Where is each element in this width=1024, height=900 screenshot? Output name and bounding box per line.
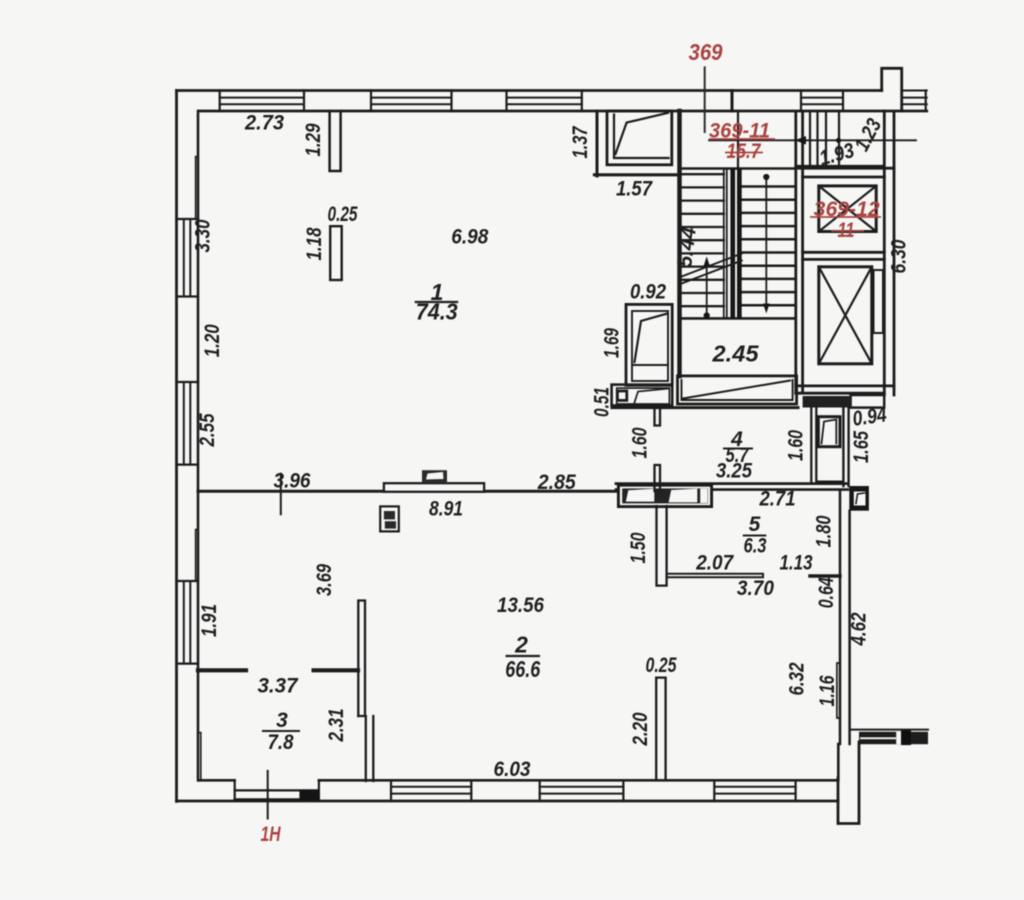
svg-text:1.20: 1.20 — [201, 324, 224, 357]
svg-text:2: 2 — [514, 632, 528, 658]
svg-text:6.03: 6.03 — [494, 758, 531, 781]
svg-text:1.29: 1.29 — [302, 123, 325, 156]
svg-text:7.8: 7.8 — [268, 731, 294, 754]
svg-text:6.32: 6.32 — [786, 662, 809, 695]
svg-text:5.44: 5.44 — [673, 226, 701, 269]
svg-text:1.60: 1.60 — [629, 427, 652, 458]
svg-text:2.55: 2.55 — [196, 413, 219, 447]
svg-text:74.3: 74.3 — [416, 299, 458, 325]
svg-text:3.70: 3.70 — [737, 577, 774, 600]
svg-text:0.51: 0.51 — [591, 387, 614, 417]
svg-text:1.65: 1.65 — [850, 431, 873, 463]
svg-text:1.57: 1.57 — [616, 178, 653, 201]
svg-text:1.16: 1.16 — [816, 675, 839, 706]
svg-text:1.13: 1.13 — [780, 552, 813, 575]
svg-text:0.25: 0.25 — [646, 654, 677, 677]
svg-text:1.18: 1.18 — [303, 227, 326, 260]
svg-text:3.96: 3.96 — [274, 470, 311, 493]
svg-text:2.07: 2.07 — [695, 552, 734, 575]
svg-text:1H: 1H — [261, 823, 282, 846]
svg-text:6.98: 6.98 — [451, 226, 488, 249]
svg-text:3.25: 3.25 — [716, 460, 752, 483]
svg-text:6.30: 6.30 — [888, 239, 911, 273]
svg-text:8.91: 8.91 — [429, 498, 463, 521]
svg-text:2.31: 2.31 — [325, 709, 348, 743]
svg-text:1.91: 1.91 — [198, 604, 221, 637]
svg-text:4.62: 4.62 — [848, 612, 871, 646]
svg-text:1.37: 1.37 — [569, 125, 592, 158]
svg-text:15.7: 15.7 — [727, 140, 762, 163]
svg-text:2.71: 2.71 — [759, 488, 796, 511]
svg-text:3.30: 3.30 — [192, 219, 215, 252]
svg-text:6.3: 6.3 — [744, 535, 767, 558]
svg-text:1.80: 1.80 — [813, 515, 836, 547]
svg-text:1.50: 1.50 — [627, 532, 650, 563]
svg-text:0.64: 0.64 — [815, 577, 838, 608]
svg-text:369: 369 — [689, 39, 723, 65]
svg-text:0.25: 0.25 — [328, 203, 358, 226]
svg-text:5: 5 — [749, 513, 761, 536]
svg-text:1.60: 1.60 — [785, 430, 808, 461]
svg-text:66.6: 66.6 — [505, 656, 540, 682]
svg-text:3.69: 3.69 — [313, 564, 336, 596]
svg-text:2.20: 2.20 — [629, 712, 652, 746]
svg-text:1.69: 1.69 — [601, 328, 624, 358]
svg-text:3: 3 — [276, 709, 288, 732]
svg-text:2.85: 2.85 — [537, 471, 576, 494]
svg-text:0.92: 0.92 — [630, 281, 666, 304]
svg-text:3.37: 3.37 — [258, 675, 299, 698]
svg-text:13.56: 13.56 — [497, 594, 544, 617]
svg-text:0.94: 0.94 — [851, 403, 888, 431]
svg-text:2.73: 2.73 — [244, 112, 284, 135]
svg-text:2.45: 2.45 — [711, 341, 759, 367]
